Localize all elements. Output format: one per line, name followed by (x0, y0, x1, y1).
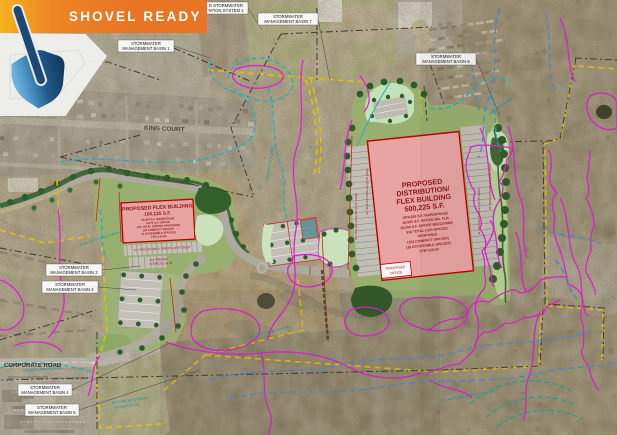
svg-text:SHOVEL READY: SHOVEL READY (69, 9, 202, 24)
